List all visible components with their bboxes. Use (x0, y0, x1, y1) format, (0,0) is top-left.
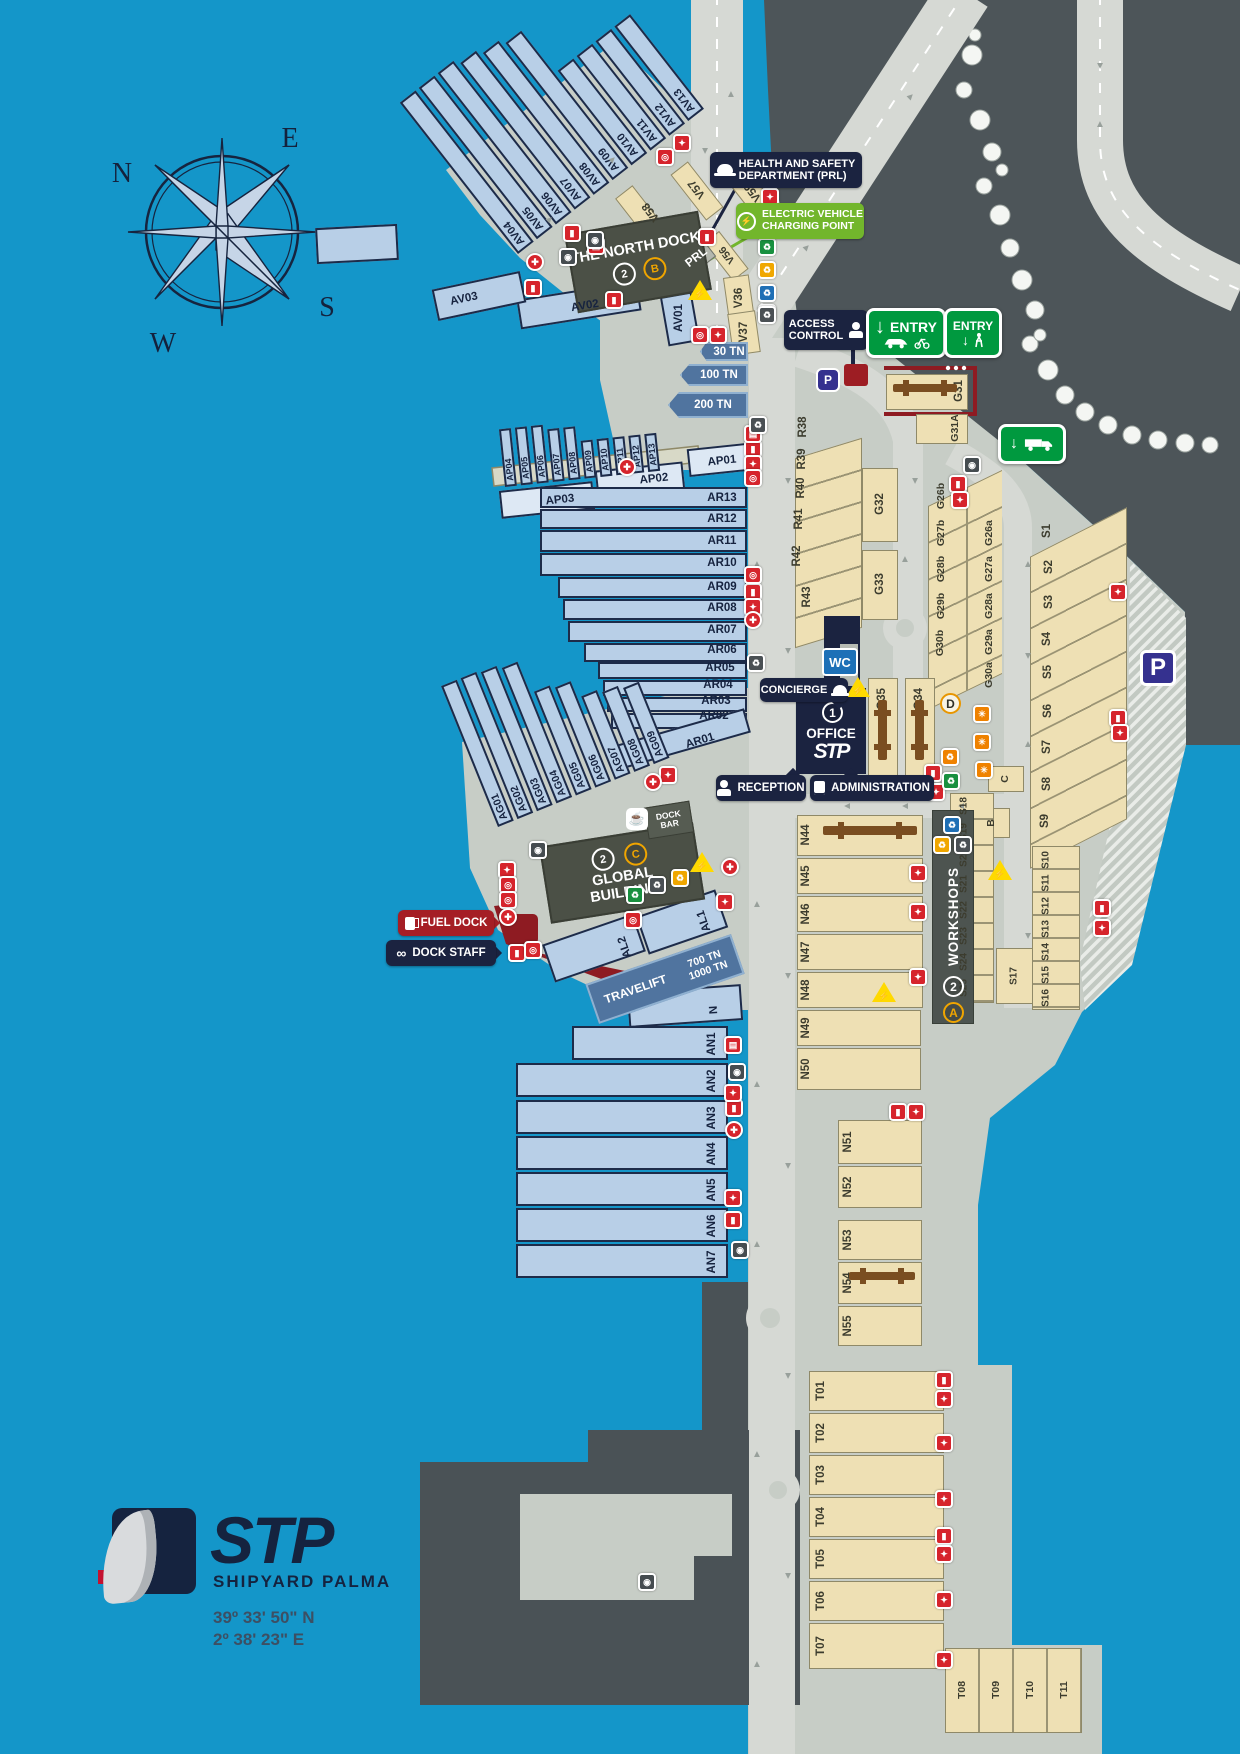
truck-icon (1024, 436, 1054, 452)
berth-label: AP05 (519, 454, 532, 483)
map-label: S6 (1042, 704, 1054, 718)
map-label: AR04 (703, 679, 732, 691)
recycle-bin-yellow-icon: ♻ (758, 261, 776, 279)
building[interactable] (809, 1455, 944, 1495)
map-label: G30b (934, 630, 946, 656)
road-arrow-icon: ▲ (726, 90, 736, 100)
map-label: AR11 (708, 535, 737, 547)
first-aid-icon: ✚ (644, 773, 662, 791)
building[interactable] (797, 896, 923, 932)
road-arrow-icon: ▲ (1023, 930, 1033, 940)
logo-longitude: 2º 38' 23" E (213, 1630, 304, 1650)
fire-extinguisher-icon: ▮ (889, 1103, 907, 1121)
road-arrow-icon: ▲ (783, 475, 793, 485)
map-label: AR06 (707, 644, 736, 656)
map-label: AR13 (707, 492, 736, 504)
building[interactable] (809, 1623, 944, 1669)
map-label: AR02 (699, 710, 728, 722)
dock-staff-text: DOCK STAFF (412, 947, 485, 960)
road-arrow-icon: ▲ (752, 900, 762, 910)
ev-charging-text: ELECTRIC VEHICLECHARGING POINT (762, 209, 863, 232)
administration-doc-icon (814, 781, 825, 795)
down-arrow-icon: ↓ (962, 333, 969, 347)
map-label: R38 (797, 416, 809, 437)
first-aid-icon: ✚ (499, 908, 517, 926)
map-label: B (985, 819, 997, 827)
entry-vehicles-label: ENTRY (890, 320, 937, 334)
crane-dock[interactable]: 100 TN (680, 364, 748, 386)
berth[interactable]: AP07 (547, 428, 564, 482)
berth[interactable] (572, 1026, 728, 1060)
map-label: G28a (983, 593, 995, 619)
down-arrow-icon: ↓ (875, 317, 885, 337)
map-label: N50 (800, 1058, 812, 1079)
berth-label: AP06 (535, 452, 548, 481)
map-label: N44 (800, 824, 812, 845)
map-label: S21 (959, 875, 970, 893)
map-label: AR12 (707, 513, 736, 525)
berth-label: AP04 (503, 456, 516, 485)
recycle-bin-green-icon: ♻ (626, 886, 644, 904)
berth[interactable] (516, 1172, 728, 1206)
map-label: G27a (983, 556, 995, 582)
map-label: G29b (935, 593, 947, 619)
ev-charging-icon: ⚡ (737, 212, 756, 231)
health-safety-callout[interactable]: HEALTH AND SAFETYDEPARTMENT (PRL) (710, 152, 862, 188)
travelift-capacity: 700 TN1000 TN (683, 947, 729, 983)
map-label: S9 (1039, 814, 1051, 828)
map-label: N55 (842, 1315, 854, 1336)
fire-hydrant-icon: ✦ (724, 1084, 742, 1102)
road-arrow-icon: ▲ (1023, 740, 1033, 750)
building[interactable] (797, 815, 923, 856)
map-label: S22 (959, 901, 970, 919)
map-label: T08 (956, 1681, 968, 1699)
road-arrow-icon: ▲ (783, 645, 793, 655)
map-label: G33 (874, 573, 886, 595)
recycle-bin-gray-icon: ♻ (758, 306, 776, 324)
map-label: S5 (1042, 665, 1054, 679)
road-arrow-icon: ▲ (900, 555, 910, 565)
map-label: AR09 (707, 581, 736, 593)
life-ring-icon: ◎ (744, 566, 762, 584)
reception-text: RECEPTION (737, 782, 804, 795)
map-label: S15 (1041, 966, 1052, 984)
health-safety-text: HEALTH AND SAFETYDEPARTMENT (PRL) (739, 158, 856, 182)
map-label: G27b (935, 520, 947, 546)
map-label: T03 (815, 1465, 827, 1485)
life-ring-icon: ◎ (744, 469, 762, 487)
map-label: AN5 (706, 1178, 718, 1201)
map-label: V36 (733, 288, 745, 308)
first-aid-icon: ✚ (618, 458, 636, 476)
fire-hydrant-icon: ✦ (935, 1651, 953, 1669)
cctv-camera-icon: ◉ (559, 248, 577, 266)
berth[interactable] (516, 1244, 728, 1278)
fire-hydrant-icon: ✦ (907, 1103, 925, 1121)
map-label: N47 (800, 941, 812, 962)
map-label: G32 (874, 493, 886, 515)
road-arrow-icon: ▲ (910, 475, 920, 485)
map-label: AN1 (706, 1032, 718, 1055)
fire-hydrant-icon: ✦ (935, 1490, 953, 1508)
map-label: N (708, 1005, 721, 1014)
map-label: S1 (1041, 524, 1053, 538)
pedestrian-icon (974, 333, 984, 348)
road-arrow-icon: ▲ (783, 1570, 793, 1580)
entry-vehicles-sign: ↓ENTRY (866, 308, 946, 358)
building[interactable] (797, 858, 923, 894)
berth-label: AP10 (598, 445, 611, 474)
dock-label: 200 TN (684, 399, 732, 411)
access-control-booth[interactable] (844, 364, 868, 386)
fire-hydrant-icon: ✦ (935, 1434, 953, 1452)
map-label: N48 (800, 979, 812, 1000)
map-label: G28b (935, 556, 947, 582)
map-label: T05 (815, 1549, 827, 1569)
map-label: C (999, 775, 1011, 783)
wc-sign: WC (822, 648, 858, 676)
map-label: N51 (842, 1131, 854, 1152)
map-label: G30a (983, 662, 995, 688)
recycle-bin-green-icon: ♻ (942, 772, 960, 790)
fuel-pump-icon (405, 917, 415, 930)
building[interactable] (809, 1497, 944, 1537)
road-arrow-icon: ▲ (783, 970, 793, 980)
road-arrow-icon: ▲ (752, 1240, 762, 1250)
fire-hydrant-icon: ✦ (909, 864, 927, 882)
workshops-badge-2: 2 (943, 976, 964, 997)
entry-pedestrian-label: ENTRY (953, 319, 993, 333)
fuel-dock-text: FUEL DOCK (421, 917, 488, 930)
parking-sign: P (1140, 650, 1176, 686)
map-label: AN6 (706, 1214, 718, 1237)
workshops-badge-a: A (943, 1002, 964, 1023)
map-label: S17 (1009, 967, 1020, 985)
building[interactable] (809, 1539, 944, 1579)
bicycle-icon (914, 337, 930, 349)
building[interactable] (809, 1413, 944, 1453)
life-ring-icon: ◎ (524, 941, 542, 959)
map-label: S4 (1041, 632, 1053, 646)
building[interactable] (797, 934, 923, 970)
parking-barrier-sign: P (816, 368, 840, 392)
concierge-bell-icon (833, 685, 847, 693)
recycle-bin-orange-icon: ♻ (941, 748, 959, 766)
map-label: G26a (983, 520, 995, 546)
fire-hydrant-icon: ✦ (1109, 583, 1127, 601)
global-badge-c: C (623, 841, 649, 867)
map-label: S10 (1041, 851, 1052, 869)
map-label: AN7 (706, 1250, 718, 1273)
dock-staff-callout[interactable]: ∞ DOCK STAFF (386, 940, 496, 966)
map-label: R43 (801, 586, 813, 607)
map-label: N53 (842, 1229, 854, 1250)
crane-dock[interactable]: 200 TN (668, 392, 748, 418)
travelift-crane-glyph (823, 826, 917, 835)
office-stp-logo: STP (796, 740, 866, 764)
map-label: S18 (959, 797, 970, 815)
building[interactable] (797, 1048, 921, 1090)
road-arrow-icon: ▲ (783, 1160, 793, 1170)
map-label: T09 (990, 1681, 1002, 1699)
map-label: N45 (800, 865, 812, 886)
recycle-bin-yellow-icon: ♻ (933, 836, 951, 854)
equipment-icon: ✳ (975, 761, 993, 779)
fire-hydrant-icon: ✦ (673, 134, 691, 152)
map-label: G26b (935, 483, 947, 509)
global-badge-2: 2 (590, 846, 616, 872)
cctv-camera-icon: ◉ (731, 1241, 749, 1259)
road-arrow-icon: ▲ (700, 145, 710, 155)
fuel-dock-callout[interactable]: FUEL DOCK (398, 910, 494, 936)
cctv-camera-icon: ◉ (963, 456, 981, 474)
fire-extinguisher-icon: ▮ (935, 1371, 953, 1389)
map-label: T07 (815, 1636, 827, 1656)
map-label: R42 (791, 545, 803, 566)
map-label: S13 (1041, 920, 1052, 938)
map-label: AR10 (707, 557, 736, 569)
berth[interactable]: AP06 (531, 425, 549, 484)
berth[interactable] (516, 1100, 728, 1134)
map-label: N52 (842, 1176, 854, 1197)
fire-hydrant-icon: ✦ (1111, 724, 1129, 742)
first-aid-icon: ✚ (526, 253, 544, 271)
recycle-bin-yellow-icon: ♻ (671, 869, 689, 887)
hard-hat-icon (717, 164, 733, 173)
entry-trucks-sign: ↓ (998, 424, 1066, 464)
north-dock-badge-b: B (642, 255, 669, 282)
road-arrow-icon: ▲ (843, 801, 853, 811)
berth[interactable]: AP08 (563, 426, 580, 480)
compass-s: S (319, 292, 335, 323)
building[interactable] (809, 1581, 944, 1621)
berth[interactable]: AP09 (581, 440, 597, 479)
fire-hydrant-icon: ✦ (935, 1545, 953, 1563)
recycle-bin-green-icon: ♻ (758, 238, 776, 256)
security-officer-icon (852, 322, 860, 330)
map-label: G31A (949, 414, 961, 441)
building[interactable] (1032, 846, 1080, 1010)
fire-extinguisher-icon: ▮ (1093, 899, 1111, 917)
map-label: T11 (1058, 1681, 1070, 1699)
first-aid-icon: ✚ (744, 611, 762, 629)
road-arrow-icon: ▲ (1095, 60, 1105, 70)
map-label: S24 (959, 953, 970, 971)
recycle-bin-gray-icon: ♻ (648, 876, 666, 894)
map-label: R40 (795, 477, 807, 498)
car-icon (883, 337, 909, 349)
map-label: S12 (1041, 897, 1052, 915)
administration-text: ADMINISTRATION (831, 782, 930, 795)
fire-hydrant-icon: ✦ (709, 326, 727, 344)
fire-extinguisher-icon: ▮ (524, 279, 542, 297)
dock-label: 100 TN (690, 369, 738, 381)
cctv-camera-icon: ◉ (728, 1063, 746, 1081)
berth-label: AP07 (551, 450, 564, 479)
road-arrow-icon: ▲ (1023, 560, 1033, 570)
map-label: T06 (815, 1591, 827, 1611)
concierge-callout[interactable]: CONCIERGE (760, 678, 848, 702)
berth[interactable] (516, 1136, 728, 1170)
compass-e: E (281, 123, 298, 154)
fire-extinguisher-icon: ▮ (698, 228, 716, 246)
map-label: N49 (800, 1017, 812, 1038)
north-dock-badge-2: 2 (611, 261, 638, 288)
map-label: R41 (793, 508, 805, 529)
map-label: S3 (1043, 595, 1055, 609)
life-ring-icon: ◎ (624, 911, 642, 929)
compass-n: N (112, 158, 132, 189)
map-label: T10 (1024, 1681, 1036, 1699)
map-label: AR08 (707, 602, 736, 614)
fire-extinguisher-icon: ▮ (935, 1527, 953, 1545)
map-label: V37 (738, 322, 750, 342)
road-arrow-icon: ▲ (752, 1080, 762, 1090)
ev-charging-callout[interactable]: ⚡ ELECTRIC VEHICLECHARGING POINT (736, 203, 864, 239)
road-arrow-icon: ▲ (752, 1660, 762, 1670)
crane-dock[interactable]: 30 TN (700, 342, 748, 361)
travelift-label: TRAVELIFT (602, 972, 668, 1006)
road-arrow-icon: ▲ (1095, 120, 1105, 130)
berth-label: AP13 (646, 440, 659, 469)
recycle-bin-blue-icon: ♻ (758, 284, 776, 302)
fire-hydrant-icon: ✦ (1093, 919, 1111, 937)
map-label: T01 (815, 1381, 827, 1401)
map-label: AN2 (706, 1069, 718, 1092)
fire-extinguisher-icon: ▮ (724, 1211, 742, 1229)
map-label: R39 (796, 448, 808, 469)
first-aid-icon: ✚ (721, 858, 739, 876)
fire-hydrant-icon: ✦ (716, 893, 734, 911)
map-label: S16 (1041, 989, 1052, 1007)
fire-hydrant-icon: ✦ (935, 1390, 953, 1408)
berth[interactable]: AP10 (597, 438, 613, 477)
logo-stp-text: STP (210, 1502, 332, 1578)
cctv-camera-icon: ◉ (638, 1573, 656, 1591)
road-arrow-icon: ▲ (1023, 650, 1033, 660)
recycle-bin-blue-icon: ♻ (943, 816, 961, 834)
map-label: AN3 (706, 1106, 718, 1129)
map-label: T02 (815, 1423, 827, 1443)
map-label: G29a (983, 629, 995, 655)
building[interactable] (809, 1371, 944, 1411)
coffee-cup-icon: ☕ (626, 808, 648, 830)
map-label: S14 (1041, 943, 1052, 961)
berth[interactable]: AP05 (515, 426, 533, 485)
logo-subtitle: SHIPYARD PALMA (213, 1572, 391, 1592)
dock-label: 30 TN (703, 346, 744, 358)
berth-label: AP09 (582, 447, 595, 476)
road-arrow-icon: ▲ (752, 1450, 762, 1460)
life-ring-icon: ◎ (499, 891, 517, 909)
map-label: AN4 (706, 1142, 718, 1165)
access-control-text: ACCESSCONTROL (789, 318, 843, 342)
fire-hose-icon: ▤ (724, 1036, 742, 1054)
map-label: AV01 (673, 304, 685, 332)
map-label: S7 (1041, 740, 1053, 754)
fire-hydrant-icon: ✦ (724, 1189, 742, 1207)
recycle-bin-gray-icon: ♻ (954, 836, 972, 854)
berth[interactable] (516, 1208, 728, 1242)
fire-extinguisher-icon: ▮ (563, 224, 581, 242)
map-label: AR07 (707, 624, 736, 636)
fire-hydrant-icon: ✦ (909, 968, 927, 986)
administration-callout[interactable]: ADMINISTRATION (810, 775, 934, 801)
building[interactable] (797, 1010, 921, 1046)
building[interactable] (797, 972, 923, 1008)
equipment-badge-d: D (940, 693, 961, 714)
berth-label: AP08 (566, 449, 579, 478)
cctv-camera-icon: ◉ (529, 841, 547, 859)
road-arrow-icon: ▲ (901, 801, 911, 811)
recycle-bin-gray-icon: ♻ (747, 654, 765, 672)
travelift-crane-glyph (878, 700, 887, 760)
fire-extinguisher-icon: ▮ (605, 291, 623, 309)
travelift-crane-glyph (915, 700, 924, 760)
map-label: S2 (1043, 560, 1055, 574)
dock-bar-label: DOCK BAR (646, 807, 692, 832)
map-label: T04 (815, 1507, 827, 1527)
map-label: S23 (959, 927, 970, 945)
map-label: S11 (1041, 874, 1052, 891)
berth[interactable] (516, 1063, 728, 1097)
reception-callout[interactable]: RECEPTION (716, 775, 806, 801)
life-ring-icon: ◎ (691, 326, 709, 344)
equipment-icon: ✳ (973, 733, 991, 751)
cctv-camera-icon: ◉ (586, 231, 604, 249)
map-label: AR03 (701, 695, 730, 707)
entry-pedestrian-sign: ENTRY ↓ (944, 308, 1002, 358)
map-label: AR05 (705, 662, 734, 674)
reception-person-icon (720, 780, 728, 788)
recycle-bin-gray-icon: ♻ (749, 416, 767, 434)
rope-knot-icon: ∞ (396, 946, 406, 960)
equipment-icon: ✳ (973, 705, 991, 723)
office-label: OFFICE (796, 726, 866, 741)
shipyard-map: N E S W THE NORTH DOCK 2 B 2 C GLOBAL BU… (0, 0, 1240, 1754)
life-ring-icon: ◎ (656, 148, 674, 166)
fire-hydrant-icon: ✦ (951, 491, 969, 509)
berth[interactable] (315, 224, 399, 264)
travelift-crane-glyph (849, 1272, 915, 1280)
access-control-callout[interactable]: ACCESSCONTROL (784, 310, 868, 350)
fire-hydrant-icon: ✦ (909, 903, 927, 921)
logo-latitude: 39º 33' 50" N (213, 1608, 315, 1628)
travelift-crane-glyph (893, 384, 957, 392)
concierge-text: CONCIERGE (761, 684, 828, 696)
first-aid-icon: ✚ (725, 1121, 743, 1139)
fire-hydrant-icon: ✦ (935, 1591, 953, 1609)
map-label: N46 (800, 903, 812, 924)
road-arrow-icon: ▲ (783, 1370, 793, 1380)
compass-w: W (150, 328, 177, 359)
map-label: S8 (1041, 777, 1053, 791)
down-arrow-icon: ↓ (1010, 435, 1018, 453)
